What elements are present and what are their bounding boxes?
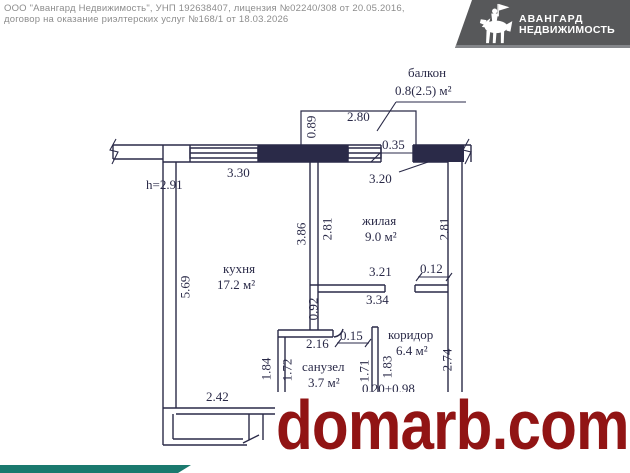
dim-corridor-right: 2.74 [441, 349, 454, 372]
dim-bath-left: 1.72 [281, 359, 294, 382]
footer-accent-bar [0, 465, 191, 473]
dim-kitchen-bottom: 2.42 [206, 390, 229, 404]
listing-floorplan-image: ООО "Авангард Недвижимость", УНП 1926384… [0, 0, 630, 473]
dim-balcony-width: 2.80 [347, 110, 370, 124]
dim-balcony-door: 0.35 [382, 138, 405, 152]
dim-living-bottom: 3.21 [369, 265, 392, 279]
dim-bath-door: 0.15 [340, 329, 363, 343]
dim-kitchen-window: 3.30 [227, 166, 250, 180]
room-label-kitchen: кухня [223, 262, 255, 276]
dim-mid-wall: 0.92 [307, 298, 320, 321]
room-area-living: 9.0 м² [365, 230, 397, 244]
room-area-kitchen: 17.2 м² [217, 278, 255, 292]
room-label-living: жилая [362, 214, 396, 228]
dim-balcony-depth: 0.89 [305, 116, 318, 139]
room-area-balcony: 0.8(2.5) м² [395, 84, 452, 98]
dim-corridor-left: 1.83 [381, 356, 394, 379]
room-label-balcony: балкон [408, 66, 446, 80]
dim-wall-stub: 0.12 [420, 262, 443, 276]
dim-kitchen-height: 5.69 [179, 276, 192, 299]
room-label-corridor: коридор [388, 328, 433, 342]
dim-bath-left-outer: 1.84 [260, 358, 273, 381]
dim-living-bottom-outer: 3.34 [366, 293, 389, 307]
room-label-bathroom: санузел [302, 360, 345, 374]
ceiling-height-note: h=2.91 [146, 178, 183, 192]
room-area-corridor: 6.4 м² [396, 344, 428, 358]
dim-living-left: 2.81 [321, 218, 334, 241]
dim-living-right: 2.81 [438, 218, 451, 241]
dim-bath-width: 2.16 [306, 337, 329, 351]
dim-bath-right: 1.71 [358, 360, 371, 383]
dim-living-top: 3.20 [369, 172, 392, 186]
watermark: domarb.com [276, 390, 629, 460]
dim-living-wall-left-outer: 3.86 [295, 223, 308, 246]
